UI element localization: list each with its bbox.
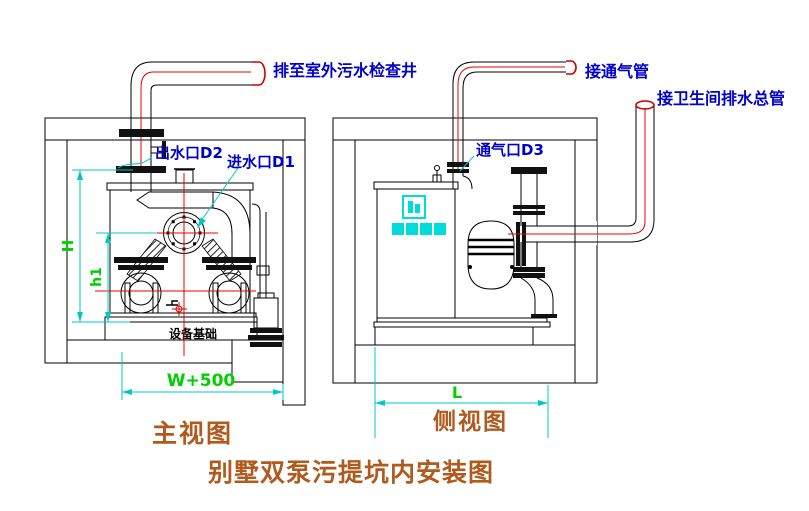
brand-logo-caption [392,223,446,235]
discharge-pipe-cap [252,62,265,85]
vent-note-label: 接通气管 [585,62,649,81]
discharge-note-label: 排至室外污水检查井 [273,61,417,80]
inlet-leader [201,168,238,221]
inlet-note-label: 接卫生间排水总管 [657,89,785,108]
front-foundation: 设备基础 [105,322,257,341]
drain-valve [166,301,178,305]
front-guide-pump [248,204,284,347]
dimension-L: L [452,383,462,402]
side-view: L 通气口D3 接通气管 接卫生间排水总管 侧视图 [333,61,785,438]
front-dimensions: H h1 W+500 [59,170,283,400]
riser-top-flange [511,167,547,174]
drawing-title: 别墅双泵污提坑内安装图 [207,458,494,487]
inlet-pipe-cap [636,101,654,109]
side-view-caption: 侧视图 [433,408,508,435]
pump-volute-left [121,273,161,313]
vent-port-label: 通气口D3 [476,141,544,159]
vent-pipe-cap [566,61,576,74]
dimension-H: H [59,240,77,253]
discharge-duct [137,192,213,208]
dimension-W500: W+500 [167,371,236,391]
dimension-h1: h1 [89,267,105,287]
front-discharge-pipe [116,62,265,192]
brand-logo [392,196,446,235]
side-pit-walls [333,118,597,383]
drawing-canvas: 设备基础 [0,0,809,511]
inlet-port-label: 进水口D1 [227,153,295,171]
outlet-port-label: 出水口D2 [155,144,223,162]
front-view-caption: 主视图 [152,419,233,448]
side-pump [374,167,557,327]
installation-drawing: 设备基础 [0,0,809,511]
front-view: 设备基础 [45,61,417,448]
side-tank [374,166,458,319]
foundation-label: 设备基础 [169,326,217,341]
side-foundation [375,327,533,345]
